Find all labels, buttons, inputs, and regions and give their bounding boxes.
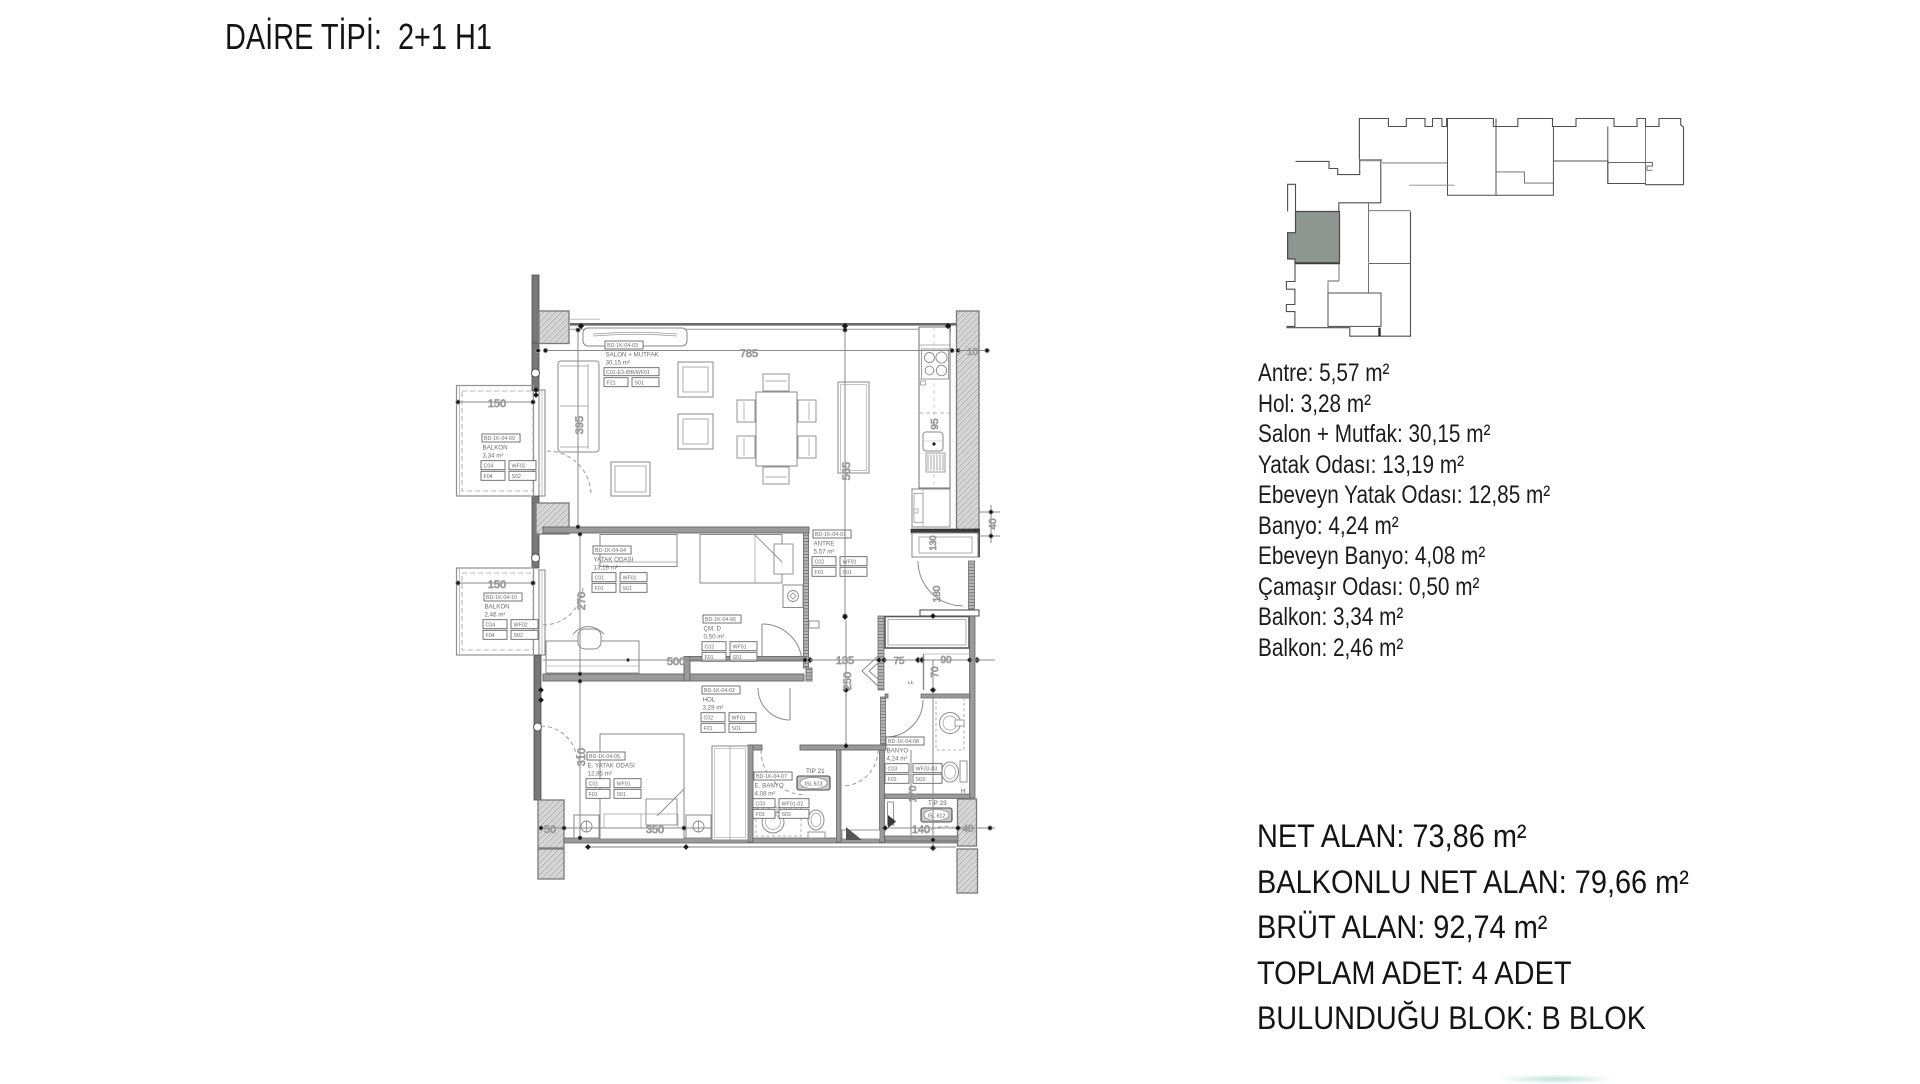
svg-text:565: 565 — [841, 462, 853, 480]
svg-text:270: 270 — [576, 592, 588, 610]
svg-text:BD-1K-04-02: BD-1K-04-02 — [704, 688, 735, 694]
svg-text:135: 135 — [836, 655, 854, 667]
svg-text:13,19 m²: 13,19 m² — [594, 565, 618, 572]
svg-text:S01: S01 — [843, 570, 852, 576]
svg-text:BD-1K-04-06: BD-1K-04-06 — [705, 617, 736, 623]
svg-text:S03: S03 — [916, 777, 925, 783]
svg-text:Lk: Lk — [908, 680, 914, 686]
svg-text:500: 500 — [667, 656, 685, 668]
svg-text:F01: F01 — [704, 726, 713, 732]
svg-text:75: 75 — [893, 656, 905, 667]
svg-text:C04: C04 — [486, 623, 496, 629]
svg-text:40: 40 — [988, 518, 999, 530]
svg-text:F01: F01 — [589, 792, 598, 798]
svg-text:785: 785 — [740, 348, 758, 360]
svg-text:WF01: WF01 — [732, 716, 746, 722]
svg-text:395: 395 — [574, 416, 586, 434]
svg-text:S01: S01 — [617, 792, 626, 798]
svg-text:4,08 m²: 4,08 m² — [755, 791, 776, 798]
svg-text:HOL: HOL — [703, 697, 716, 704]
svg-text:WF01: WF01 — [617, 782, 631, 788]
svg-text:BALKON: BALKON — [483, 445, 508, 452]
svg-text:170: 170 — [908, 785, 919, 802]
svg-text:95: 95 — [930, 418, 941, 430]
svg-text:C04: C04 — [484, 464, 494, 470]
svg-text:E. YATAK ODASI: E. YATAK ODASI — [588, 763, 636, 770]
svg-text:12,85 m²: 12,85 m² — [588, 771, 612, 778]
svg-text:C01: C01 — [595, 576, 605, 582]
svg-text:S01: S01 — [623, 586, 632, 592]
svg-text:F21: F21 — [607, 381, 616, 387]
svg-text:0,50 m²: 0,50 m² — [704, 634, 725, 641]
svg-text:H: H — [961, 789, 965, 795]
svg-text:WF03-03: WF03-03 — [916, 767, 938, 773]
svg-text:C03: C03 — [888, 767, 898, 773]
svg-text:S02: S02 — [512, 474, 521, 480]
svg-text:4,24 m²: 4,24 m² — [887, 756, 908, 763]
svg-text:BD-1K-04-10: BD-1K-04-10 — [486, 595, 517, 601]
svg-text:C02: C02 — [705, 645, 715, 651]
svg-text:40: 40 — [962, 824, 974, 835]
svg-text:S01: S01 — [732, 726, 741, 732]
svg-text:BANYO: BANYO — [887, 748, 909, 755]
svg-text:TIP 21: TIP 21 — [806, 768, 825, 775]
svg-text:BALKON: BALKON — [485, 604, 510, 611]
svg-text:F03: F03 — [888, 777, 897, 783]
svg-text:C03: C03 — [756, 802, 766, 808]
svg-text:C01-E3-IBB/WF01: C01-E3-IBB/WF01 — [606, 370, 650, 376]
svg-text:ISL 613: ISL 613 — [805, 781, 823, 787]
svg-text:10: 10 — [967, 347, 979, 358]
svg-text:150: 150 — [488, 398, 506, 410]
svg-text:S01: S01 — [635, 381, 644, 387]
svg-text:F01: F01 — [815, 570, 824, 576]
svg-text:C01: C01 — [589, 782, 599, 788]
svg-text:BD-1K-04-05: BD-1K-04-05 — [589, 754, 620, 760]
svg-text:F04: F04 — [484, 474, 493, 480]
svg-text:BD-1K-04-03: BD-1K-04-03 — [607, 343, 638, 349]
svg-text:BD-1K-04-04: BD-1K-04-04 — [595, 548, 626, 554]
svg-text:WF01-02: WF01-02 — [782, 802, 804, 808]
svg-text:F01: F01 — [595, 586, 604, 592]
svg-text:E. BANYO: E. BANYO — [755, 783, 784, 790]
svg-text:140: 140 — [912, 824, 930, 836]
svg-text:S03: S03 — [782, 812, 791, 818]
svg-text:F03: F03 — [756, 812, 765, 818]
svg-text:50: 50 — [544, 824, 556, 836]
svg-text:TIP 23: TIP 23 — [928, 800, 947, 807]
svg-text:180: 180 — [932, 585, 943, 602]
svg-text:150: 150 — [488, 579, 506, 591]
svg-text:F04: F04 — [486, 633, 495, 639]
svg-text:ANTRE: ANTRE — [814, 541, 835, 548]
svg-text:C02: C02 — [815, 560, 825, 566]
svg-text:SALON + MUTFAK: SALON + MUTFAK — [606, 352, 660, 359]
svg-text:250: 250 — [842, 672, 854, 690]
svg-text:2,46 m²: 2,46 m² — [485, 612, 506, 619]
svg-text:S02: S02 — [514, 633, 523, 639]
svg-text:C02: C02 — [704, 716, 714, 722]
svg-text:BD-1K-04-09: BD-1K-04-09 — [484, 436, 515, 442]
svg-text:ÇM. D: ÇM. D — [704, 626, 722, 633]
svg-text:30,15 m²: 30,15 m² — [606, 360, 630, 367]
svg-text:3,34 m²: 3,34 m² — [483, 453, 504, 460]
svg-text:WF02: WF02 — [514, 623, 528, 629]
svg-text:90: 90 — [940, 655, 952, 666]
svg-text:70: 70 — [930, 666, 941, 678]
svg-text:BD-1K-04-01: BD-1K-04-01 — [815, 532, 846, 538]
svg-text:5,57 m²: 5,57 m² — [814, 549, 835, 556]
svg-text:YATAK ODASI: YATAK ODASI — [594, 557, 634, 564]
svg-text:WF01: WF01 — [733, 645, 747, 651]
svg-text:BD-1K-04-08: BD-1K-04-08 — [888, 739, 919, 745]
svg-text:ISL 612: ISL 612 — [928, 813, 946, 819]
svg-text:310: 310 — [576, 748, 588, 766]
svg-text:BD-1K-04-07: BD-1K-04-07 — [756, 774, 787, 780]
svg-text:WF01: WF01 — [623, 576, 637, 582]
svg-text:130: 130 — [928, 535, 938, 550]
svg-text:WF02: WF02 — [512, 464, 526, 470]
svg-text:3,28 m²: 3,28 m² — [703, 705, 724, 712]
svg-text:350: 350 — [646, 824, 664, 836]
